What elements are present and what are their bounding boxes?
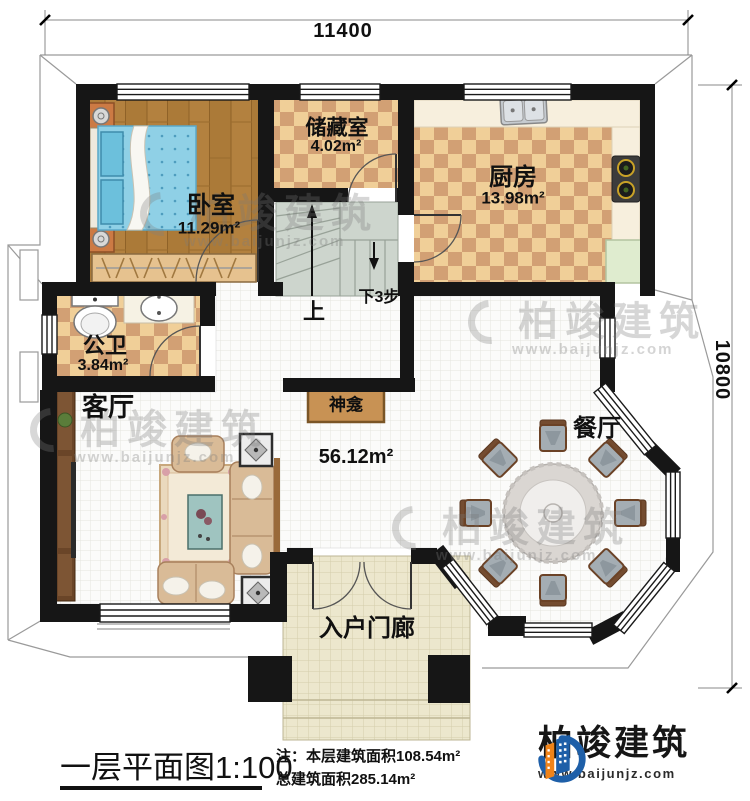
plan-notes: 注：本层建筑面积108.54m² 总建筑面积285.14m² (276, 745, 460, 791)
coffee-table (188, 495, 222, 549)
room-label-bedroom: 卧室 (187, 194, 235, 218)
floor-plan-page: 柏竣建筑 www.baijunjz.com 柏竣建筑 www.baijunjz.… (0, 0, 750, 801)
living-dining-area: 56.12m² (319, 447, 394, 467)
stairs-up-label: 上 (303, 301, 325, 323)
kitchen-cabinet (606, 240, 642, 283)
bed (90, 126, 196, 230)
room-label-living: 客厅 (82, 394, 134, 420)
toilet (72, 293, 118, 338)
dining-chair (540, 575, 566, 606)
wardrobe (92, 254, 256, 282)
sofa-console (274, 458, 280, 554)
room-label-shrine: 神龛 (329, 397, 363, 414)
sofa-right (230, 462, 274, 574)
tv-cabinet (55, 385, 76, 601)
room-label-kitchen: 厨房 (489, 166, 537, 190)
stove (612, 156, 640, 202)
room-label-storage: 储藏室 (306, 118, 369, 139)
living-window (100, 604, 230, 622)
plant (58, 413, 72, 427)
plan-note-total-area: 总建筑面积285.14m² (276, 768, 460, 791)
room-label-dining: 餐厅 (573, 417, 621, 441)
dimension-right: 10800 (712, 340, 732, 401)
room-area-kitchen: 13.98m² (481, 190, 544, 207)
kitchen-window (464, 84, 571, 100)
storage-window (300, 84, 380, 100)
porch-floor (283, 556, 470, 740)
plan-title-text: 一层平面图 (60, 750, 215, 785)
dining-chair (460, 500, 491, 526)
room-label-porch: 入户门廊 (319, 617, 415, 641)
dimension-top: 11400 (313, 21, 373, 41)
brand-block: 柏竣建筑 www.baijunjz.com (532, 724, 690, 781)
end-table (240, 434, 272, 466)
staircase (276, 202, 398, 296)
armchair (172, 436, 224, 472)
stairs-down-label: 下3步 (359, 290, 400, 306)
bay-window (524, 623, 592, 637)
room-area-storage: 4.02m² (311, 139, 362, 155)
plan-title: 一层平面图1:100 (60, 742, 293, 787)
sofa-bottom (158, 562, 234, 604)
bay-window (666, 472, 680, 538)
dining-chair (540, 420, 566, 451)
bay-window (600, 318, 615, 358)
plan-note-floor-area: 注：本层建筑面积108.54m² (276, 745, 460, 768)
room-label-bathroom: 公卫 (83, 335, 127, 357)
bathroom-sink (124, 293, 194, 323)
dining-set (460, 420, 646, 606)
room-area-bathroom: 3.84m² (78, 358, 129, 374)
bedroom-window (117, 84, 249, 100)
room-area-bedroom: 11.29m² (178, 220, 240, 237)
tv (71, 462, 76, 558)
bathroom-window (42, 315, 57, 354)
dining-chair (615, 500, 646, 526)
plan-title-underline (60, 786, 262, 790)
brand-logo-icon (532, 724, 590, 788)
